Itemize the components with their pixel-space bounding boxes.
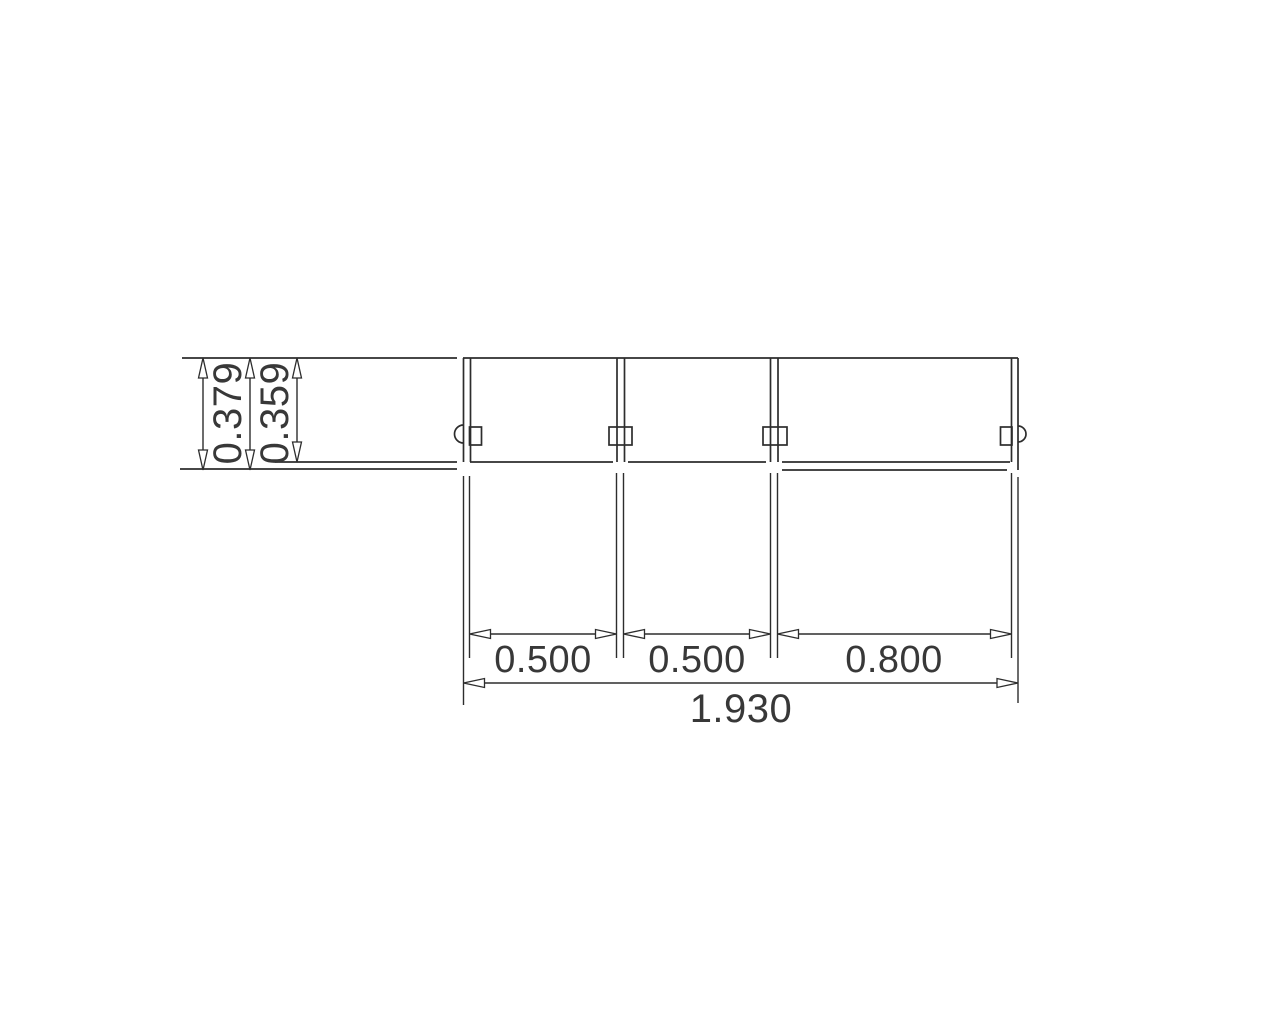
hardware-details (455, 425, 1027, 445)
dims-height: 0.379 0.359 (199, 358, 302, 470)
dim-total-width: 1.930 (464, 679, 1019, 732)
arrowhead-left-icon (470, 630, 491, 639)
dim-label-bay2: 0.500 (648, 639, 746, 681)
dim-label-bay1: 0.500 (494, 639, 592, 681)
dim-label-total: 1.930 (690, 687, 793, 731)
dim-label-height-outer: 0.379 (206, 362, 250, 465)
compartment-row (463, 358, 1018, 470)
arrowhead-left-icon (464, 679, 485, 688)
arrowhead-right-icon (750, 630, 771, 639)
hinge-arc-left (455, 425, 464, 443)
dim-label-height-inner: 0.359 (253, 362, 297, 465)
technical-drawing-svg: 0.379 0.359 0.500 0.500 0.800 1.930 (0, 0, 1280, 1024)
dim-label-bay3: 0.800 (845, 639, 943, 681)
cad-canvas: 0.379 0.359 0.500 0.500 0.800 1.930 (0, 0, 1280, 1024)
arrowhead-right-icon (596, 630, 617, 639)
latch-clip-right (1001, 427, 1013, 445)
arrowhead-right-icon (991, 630, 1012, 639)
hinge-arc-right (1018, 426, 1026, 442)
arrowhead-right-icon (997, 679, 1018, 688)
latch-clip-partition1 (609, 427, 632, 445)
latch-clip-partition2 (763, 427, 787, 445)
arrowhead-left-icon (778, 630, 799, 639)
dims-bay-widths: 0.500 0.500 0.800 (470, 630, 1012, 682)
arrowhead-left-icon (624, 630, 645, 639)
